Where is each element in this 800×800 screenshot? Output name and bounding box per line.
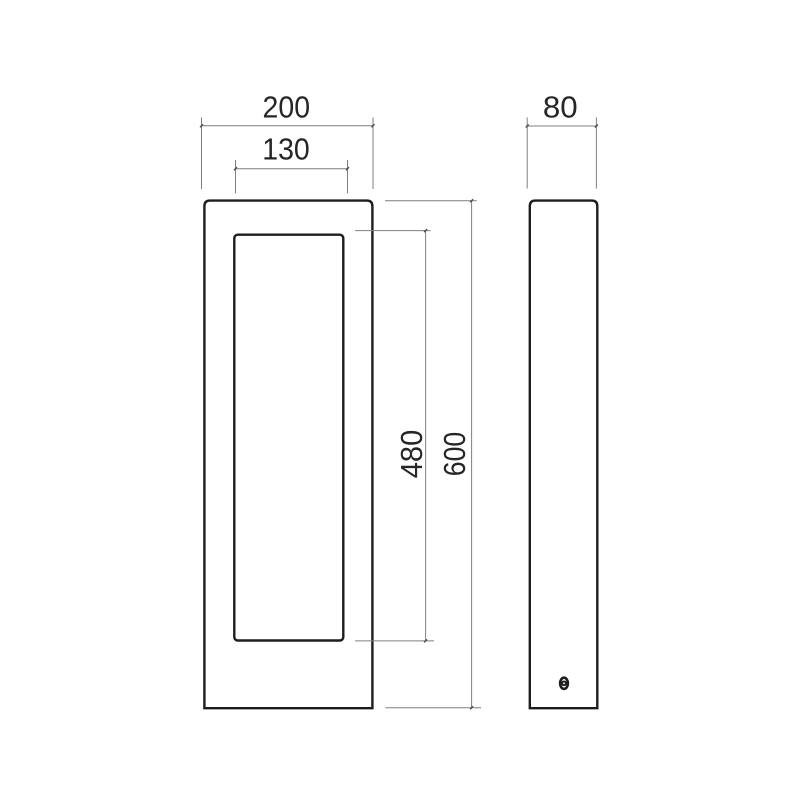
svg-text:600: 600 (437, 432, 472, 477)
svg-text:80: 80 (543, 90, 578, 125)
svg-text:130: 130 (262, 132, 310, 167)
svg-text:200: 200 (263, 90, 311, 125)
svg-text:480: 480 (394, 430, 429, 479)
